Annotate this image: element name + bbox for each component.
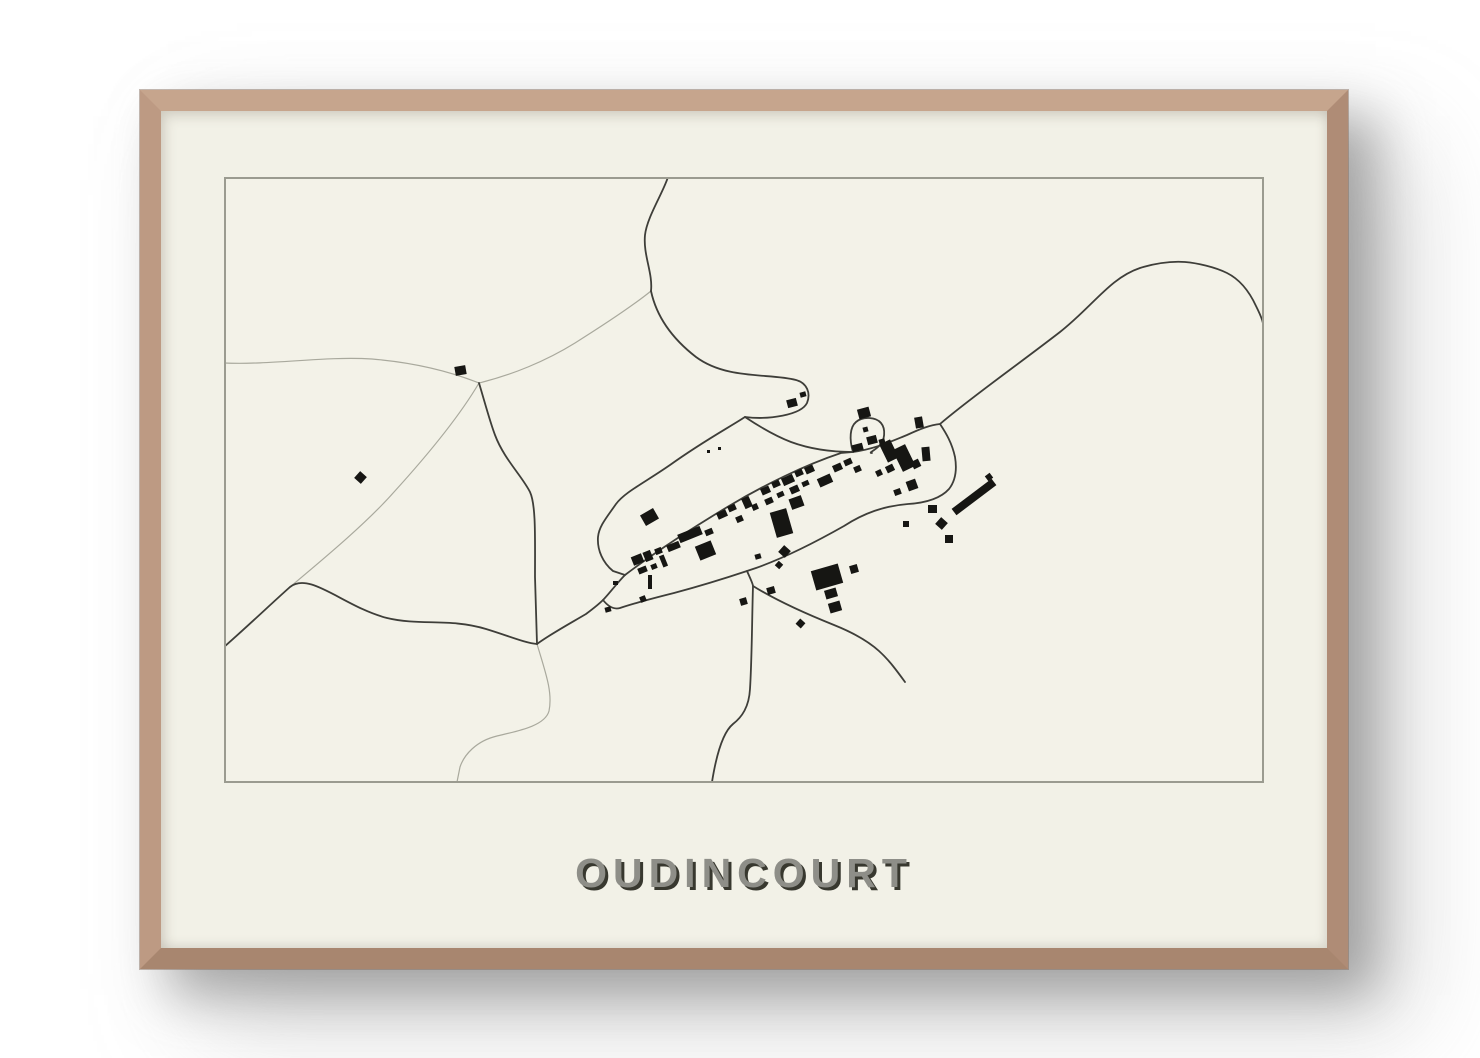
building-footprint	[454, 365, 466, 376]
building-footprint	[648, 575, 652, 589]
poster-title: OUDINCOURT	[161, 853, 1327, 894]
poster-frame: OUDINCOURT	[140, 90, 1348, 969]
map-panel	[224, 177, 1264, 783]
building-footprint	[928, 505, 937, 513]
building-footprint	[921, 447, 930, 462]
poster-mat: OUDINCOURT	[161, 111, 1327, 948]
building-footprint	[718, 447, 721, 450]
village-map-svg	[224, 177, 1264, 783]
building-footprint	[903, 521, 909, 527]
page-background: OUDINCOURT	[0, 0, 1480, 1058]
map-paper	[224, 177, 1264, 783]
building-footprint	[707, 450, 710, 453]
building-footprint	[613, 581, 618, 585]
building-footprint	[945, 535, 953, 543]
